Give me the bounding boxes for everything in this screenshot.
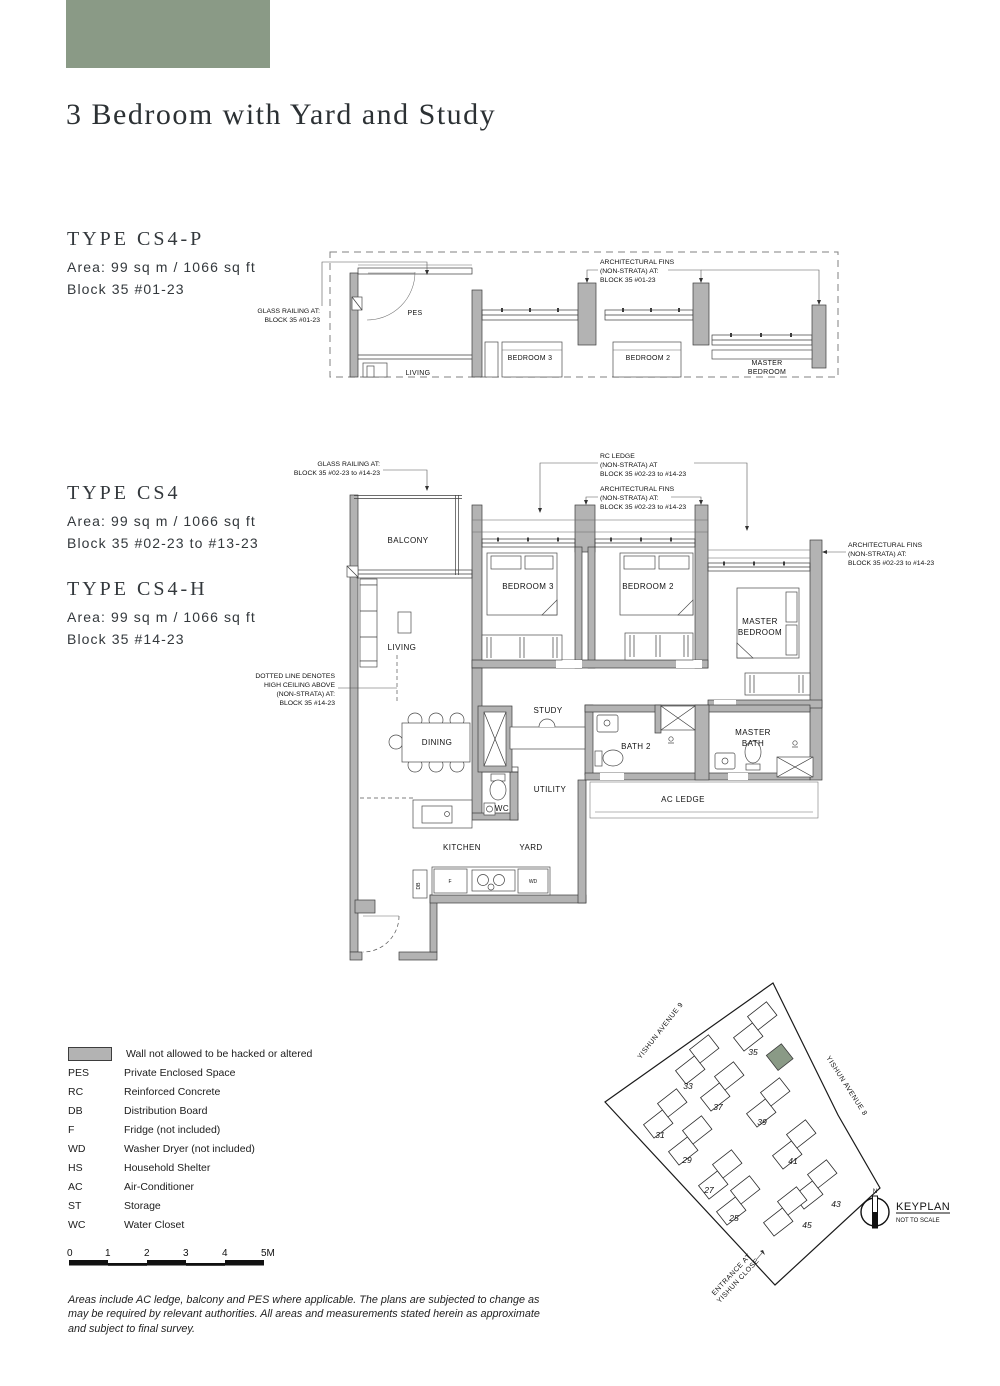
brand-logo-block [66, 0, 270, 68]
type-area: Area: 99 sq m / 1066 sq ft [67, 609, 256, 625]
annotation-arch-fins-1: ARCHITECTURAL FINS [600, 259, 675, 266]
annotation-high-ceiling-4: BLOCK 35 #14-23 [279, 700, 335, 707]
type-area: Area: 99 sq m / 1066 sq ft [67, 513, 259, 529]
room-label-bedroom2: BEDROOM 2 [622, 582, 674, 591]
top-floor-plan: PES LIVING BEDROOM 3 BEDROOM 2 MASTER BE… [255, 250, 845, 385]
legend-row: WDWasher Dryer (not included) [68, 1139, 312, 1158]
legend-wall-row: Wall not allowed to be hacked or altered [68, 1044, 312, 1063]
keyplan-block-number: 29 [681, 1155, 692, 1165]
annotation-arch-fins-top-3: BLOCK 35 #02-23 to #14-23 [600, 504, 686, 511]
keyplan-subtitle: NOT TO SCALE [896, 1218, 940, 1224]
room-label-master-1: MASTER [742, 617, 778, 626]
keyplan-blocks [639, 1002, 842, 1236]
room-label-balcony: BALCONY [387, 536, 428, 545]
svg-text:3: 3 [183, 1248, 189, 1259]
room-label-bath2: BATH 2 [621, 742, 651, 751]
svg-text:4: 4 [222, 1248, 228, 1259]
wall-swatch [68, 1047, 112, 1061]
legend-row: STStorage [68, 1196, 312, 1215]
page-title: 3 Bedroom with Yard and Study [66, 98, 496, 132]
annotation-arch-fins-right-1: ARCHITECTURAL FINS [848, 542, 923, 549]
room-label-dining: DINING [422, 738, 452, 747]
annotation-arch-fins-2: (NON-STRATA) AT: [600, 268, 659, 275]
legend-row: ACAir-Conditioner [68, 1177, 312, 1196]
annotation-glass-railing-2: BLOCK 35 #02-23 to #14-23 [294, 470, 380, 477]
entrance-label: ENTRANCE AT YISHUN CLOSE [710, 1251, 761, 1304]
annotation-high-ceiling-1: DOTTED LINE DENOTES [255, 673, 335, 680]
road-label-yishun-ave-9: YISHUN AVENUE 9 [637, 1001, 685, 1060]
keyplan-block-39 [742, 1078, 795, 1127]
annotation-arch-fins-top-2: (NON-STRATA) AT: [600, 495, 659, 502]
keyplan-block-number: 27 [703, 1185, 714, 1195]
keyplan-block-number: 41 [788, 1156, 798, 1166]
annotation-glass-railing-2: BLOCK 35 #01-23 [264, 317, 320, 324]
room-label-study: STUDY [533, 706, 562, 715]
room-label-living: LIVING [388, 643, 417, 652]
legend-row: HSHousehold Shelter [68, 1158, 312, 1177]
unit-type-cs4h: TYPE CS4-H Area: 99 sq m / 1066 sq ft Bl… [67, 578, 256, 653]
room-label-master-2: BEDROOM [738, 628, 782, 637]
room-label-kitchen: KITCHEN [443, 843, 481, 852]
type-name: TYPE CS4 [67, 482, 259, 505]
annotation-arch-fins-right-3: BLOCK 35 #02-23 to #14-23 [848, 560, 934, 567]
keyplan-block-number: 25 [728, 1213, 739, 1223]
type-area: Area: 99 sq m / 1066 sq ft [67, 259, 256, 275]
room-label-pes: PES [408, 310, 423, 317]
keyplan-block-number: 43 [831, 1199, 841, 1209]
main-floor-plan: BALCONY LIVING BEDROOM 3 BEDROOM 2 MASTE… [250, 450, 950, 970]
room-label-utility: UTILITY [534, 785, 567, 794]
annotation-rc-ledge-1: RC LEDGE [600, 453, 635, 460]
fixture-label-washer-dryer: WD [529, 879, 538, 885]
room-label-living: LIVING [406, 370, 431, 377]
legend: Wall not allowed to be hacked or altered… [68, 1044, 312, 1234]
annotation-glass-railing-1: GLASS RAILING AT: [317, 461, 380, 468]
room-label-master-bath-2: BATH [742, 739, 764, 748]
room-label-bedroom2: BEDROOM 2 [626, 355, 671, 362]
legend-row: FFridge (not included) [68, 1120, 312, 1139]
keyplan-block-number: 39 [757, 1117, 767, 1127]
svg-text:5M: 5M [261, 1248, 275, 1259]
type-block: Block 35 #01-23 [67, 281, 256, 297]
legend-row: WCWater Closet [68, 1215, 312, 1234]
svg-text:2: 2 [144, 1248, 150, 1259]
annotation-arch-fins-top-1: ARCHITECTURAL FINS [600, 486, 675, 493]
fixture-label-db: DB [416, 882, 422, 890]
room-label-master-1: MASTER [752, 360, 783, 367]
svg-text:0: 0 [67, 1248, 73, 1259]
keyplan-block-number: 33 [683, 1081, 693, 1091]
keyplan-block-number: 37 [713, 1102, 723, 1112]
room-label-yard: YARD [519, 843, 542, 852]
annotation-glass-railing-1: GLASS RAILING AT: [257, 308, 320, 315]
legend-row: PESPrivate Enclosed Space [68, 1063, 312, 1082]
legend-wall-note: Wall not allowed to be hacked or altered [126, 1048, 312, 1060]
annotation-high-ceiling-2: HIGH CEILING ABOVE [264, 682, 335, 689]
room-label-bedroom3: BEDROOM 3 [502, 582, 554, 591]
legend-row: DBDistribution Board [68, 1101, 312, 1120]
room-label-bedroom3: BEDROOM 3 [508, 355, 553, 362]
room-label-ac-ledge: AC LEDGE [661, 795, 705, 804]
disclaimer-text: Areas include AC ledge, balcony and PES … [68, 1293, 560, 1336]
annotation-rc-ledge-2: (NON-STRATA) AT [600, 462, 657, 469]
legend-row: RCReinforced Concrete [68, 1082, 312, 1101]
keyplan-title: KEYPLAN [896, 1201, 950, 1213]
unit-type-cs4p: TYPE CS4-P Area: 99 sq m / 1066 sq ft Bl… [67, 228, 256, 303]
annotation-arch-fins-3: BLOCK 35 #01-23 [600, 277, 656, 284]
fixture-label-fridge: F [448, 879, 451, 885]
unit-type-cs4: TYPE CS4 Area: 99 sq m / 1066 sq ft Bloc… [67, 482, 259, 557]
keyplan-block-number: 31 [655, 1130, 665, 1140]
type-name: TYPE CS4-H [67, 578, 256, 601]
type-block: Block 35 #02-23 to #13-23 [67, 535, 259, 551]
room-label-wc: WC [495, 804, 509, 813]
north-label: N [873, 1189, 877, 1195]
scale-bar: 0 1 2 3 4 5M [64, 1246, 294, 1274]
svg-text:1: 1 [105, 1248, 111, 1259]
room-label-master-2: BEDROOM [748, 369, 786, 376]
floorplan-page: 3 Bedroom with Yard and Study TYPE CS4-P… [0, 0, 1000, 1386]
north-indicator: N [861, 1189, 889, 1228]
keyplan-map: YISHUN AVENUE 9 YISHUN AVENUE 8 ENTRANCE… [590, 972, 990, 1322]
highlighted-unit [766, 1044, 793, 1071]
site-boundary [605, 983, 880, 1285]
type-block: Block 35 #14-23 [67, 631, 256, 647]
keyplan-block-number: 45 [802, 1220, 812, 1230]
road-label-yishun-ave-8: YISHUN AVENUE 8 [824, 1055, 868, 1117]
annotation-rc-ledge-3: BLOCK 35 #02-23 to #14-23 [600, 471, 686, 478]
annotation-high-ceiling-3: (NON-STRATA) AT: [276, 691, 335, 698]
room-label-master-bath-1: MASTER [735, 728, 771, 737]
type-name: TYPE CS4-P [67, 228, 256, 251]
keyplan-block-number: 35 [748, 1047, 758, 1057]
annotation-arch-fins-right-2: (NON-STRATA) AT: [848, 551, 907, 558]
